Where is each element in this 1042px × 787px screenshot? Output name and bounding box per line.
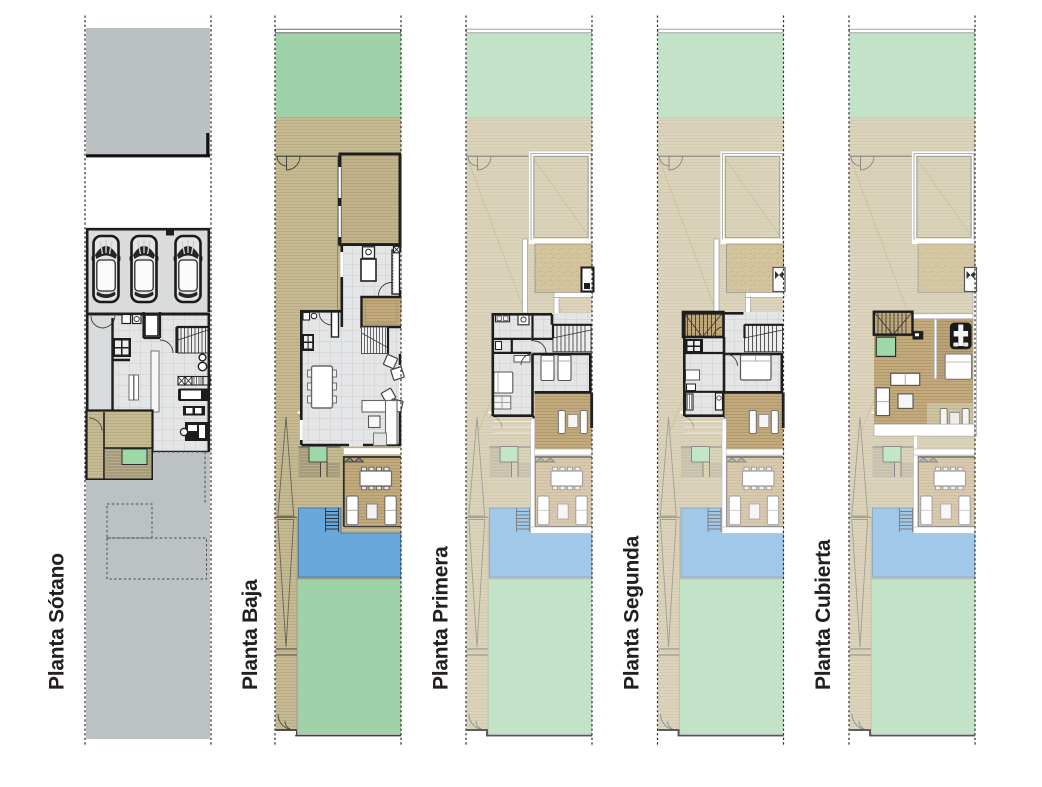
svg-text:Planta Primera: Planta Primera <box>430 546 453 690</box>
svg-text:Planta Sótano: Planta Sótano <box>46 553 69 690</box>
svg-text:Planta Baja: Planta Baja <box>239 579 262 690</box>
svg-text:Planta Cubierta: Planta Cubierta <box>812 539 835 690</box>
svg-text:Planta Segunda: Planta Segunda <box>621 535 644 690</box>
